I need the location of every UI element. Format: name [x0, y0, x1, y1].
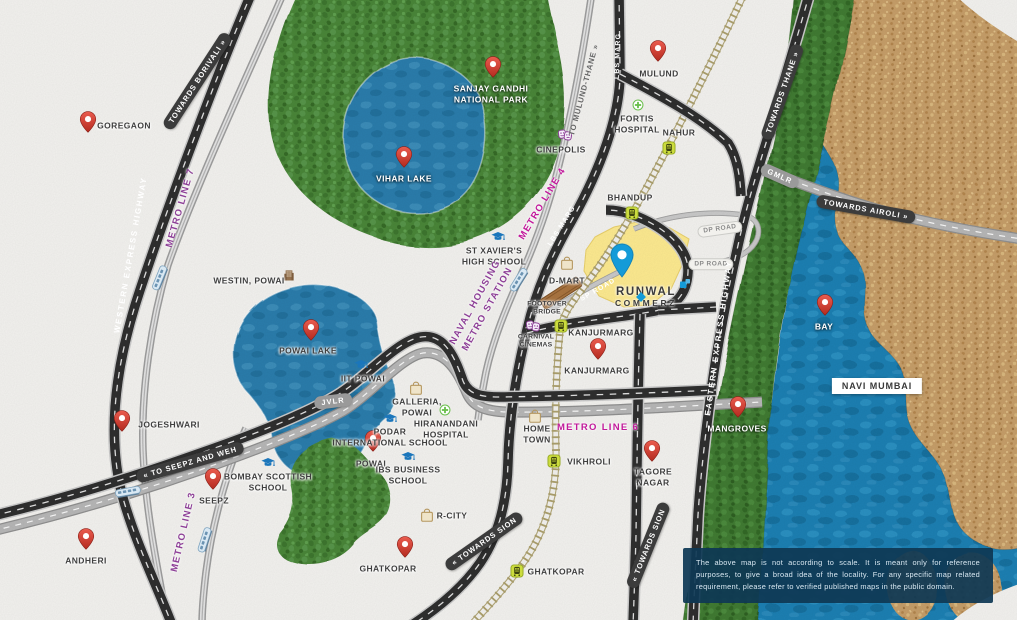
amenity-label-footover-bridge: FOOTOVER BRIDGE — [527, 301, 567, 318]
building-icon[interactable] — [282, 270, 296, 281]
road-label: TOWARDS THANE » — [760, 43, 804, 142]
bag-icon[interactable] — [409, 381, 423, 395]
pin-label-jogeshwari: JOGESHWARI — [138, 420, 200, 431]
pin-goregaon[interactable] — [80, 111, 97, 133]
road-label: WESTERN EXPRESS HIGHWAY — [113, 176, 148, 334]
road-label: GMLR — [759, 162, 801, 190]
pin-label-mangroves: MANGROVES — [707, 424, 766, 435]
cap-icon[interactable] — [401, 452, 415, 463]
masks-icon[interactable] — [526, 321, 540, 332]
pin-label-mulund: MULUND — [639, 69, 678, 80]
pin-mangroves[interactable] — [730, 396, 747, 418]
pin-sanjay-gandhi-national-park[interactable] — [485, 56, 502, 78]
pin-tagore-nagar[interactable] — [644, 440, 661, 462]
amenity-label-cinepolis: CINEPOLIS — [536, 145, 585, 156]
station-label-nahur: NAHUR — [663, 128, 696, 139]
cap-icon[interactable] — [491, 232, 505, 243]
road-label: « TOWARDS SION — [443, 510, 525, 573]
station-label-bhandup: BHANDUP — [607, 193, 652, 204]
amenity-label-d-mart: D-MART — [549, 276, 585, 287]
pin-powai-lake[interactable] — [303, 319, 320, 341]
station-label-ghatkopar-station: GHATKOPAR — [527, 567, 584, 578]
project-label: RUNWALCOMMERZ — [615, 286, 677, 308]
amenity-label-iit-powai: IIT POWAI — [341, 374, 385, 385]
station-label-kanjurmarg-station: KANJURMARG — [568, 328, 633, 339]
road-label: « TO SEEPZ AND WEH — [135, 441, 245, 484]
road-label: LBS MARG — [547, 205, 577, 248]
pin-label-seepz: SEEPZ — [199, 496, 229, 507]
amenity-label-fortis-hospital: FORTIS HOSPITAL — [614, 113, 660, 134]
amenity-label-ibs-business-school: IBS BUSINESS SCHOOL — [376, 464, 441, 485]
pin-label-sanjay-gandhi-national-park: SANJAY GANDHI NATIONAL PARK — [454, 83, 529, 104]
pin-jogeshwari[interactable] — [114, 410, 131, 432]
cross-icon[interactable] — [439, 405, 451, 416]
pin-label-powai-lake: POWAI LAKE — [279, 346, 337, 357]
bag-icon[interactable] — [420, 508, 434, 522]
bag-icon[interactable] — [560, 256, 574, 270]
cross-icon[interactable] — [632, 100, 644, 111]
area-label-navi-mumbai: NAVI MUMBAI — [832, 378, 922, 394]
cap-icon[interactable] — [261, 458, 275, 469]
metro-train-icon — [196, 526, 214, 554]
pin-bay[interactable] — [817, 294, 834, 316]
amenity-label-bombay-scottish-school: BOMBAY SCOTTISH SCHOOL — [224, 471, 312, 492]
metro-station-icon[interactable] — [555, 320, 568, 333]
pin-kanjurmarg[interactable] — [590, 338, 607, 360]
pin-label-andheri: ANDHERI — [65, 556, 107, 567]
amenity-label-westin-powai: WESTIN, POWAI — [213, 276, 284, 287]
pin-label-kanjurmarg: KANJURMARG — [564, 366, 629, 377]
bag-icon[interactable] — [528, 409, 542, 423]
road-label: EASTERN EXPRESS HIGHWAY — [704, 260, 734, 417]
cap-icon[interactable] — [383, 414, 397, 425]
amenity-label-hiranandani-hospital: HIRANANDANI HOSPITAL — [414, 418, 478, 439]
labels-overlay: GOREGAONMULUNDSANJAY GANDHI NATIONAL PAR… — [0, 0, 1017, 620]
map-disclaimer: The above map is not according to scale.… — [683, 548, 993, 603]
metro-station-icon[interactable] — [626, 207, 639, 220]
project-name-line2: COMMERZ — [615, 298, 677, 308]
pin-label-goregaon: GOREGAON — [97, 121, 151, 132]
cap-icon[interactable] — [354, 360, 368, 371]
metro-station-icon[interactable] — [548, 455, 561, 468]
amenity-label-r-city: R-CITY — [437, 511, 468, 522]
metro-station-icon[interactable] — [511, 565, 524, 578]
pin-seepz[interactable] — [205, 468, 222, 490]
amenity-label-podar-international-school: PODAR INTERNATIONAL SCHOOL — [332, 426, 447, 447]
road-label: TOWARDS AIROLI » — [816, 194, 917, 224]
pin-powai[interactable] — [365, 430, 382, 452]
pin-label-ghatkopar-west: GHATKOPAR — [359, 564, 416, 575]
project-pin[interactable] — [607, 242, 637, 280]
amenity-label-home-town: HOME TOWN — [523, 423, 550, 444]
metro-train-icon — [150, 264, 169, 292]
pin-label-tagore-nagar: TAGORE NAGAR — [634, 466, 672, 487]
road-label: DP ROAD — [697, 220, 744, 238]
metro-station-icon[interactable] — [663, 142, 676, 155]
station-label-vikhroli: VIKHROLI — [567, 457, 611, 468]
road-label: « TOWARDS SION — [625, 500, 671, 590]
metro-line-label: NAVAL HOUSING METRO STATION — [447, 258, 518, 355]
metro-train-icon — [114, 485, 141, 499]
pin-label-bay: BAY — [815, 322, 833, 333]
amenity-label-galleria-powai: GALLERIA, POWAI — [392, 396, 441, 417]
pin-vihar-lake[interactable] — [396, 146, 413, 168]
amenity-label-carnival-cinemas: CARNIVAL CINEMAS — [518, 334, 554, 351]
metro-line-label: METRO LINE 6 — [557, 421, 639, 435]
road-label: TO MULUND-THANE » — [568, 43, 600, 136]
pin-label-vihar-lake: VIHAR LAKE — [376, 174, 432, 185]
road-label: SP ROAD — [579, 277, 617, 303]
pin-label-powai: POWAI — [356, 459, 386, 470]
pin-mulund[interactable] — [650, 40, 667, 62]
pin-andheri[interactable] — [78, 528, 95, 550]
road-label: TOWARDS BORIVALI » — [161, 31, 232, 132]
locality-map: GOREGAONMULUNDSANJAY GANDHI NATIONAL PAR… — [0, 0, 1017, 620]
road-label: JVLR — [314, 393, 353, 410]
metro-line-label: METRO LINE 7 — [163, 167, 199, 250]
road-label: LBS MARG — [614, 33, 623, 79]
runwal-logo-icon — [680, 279, 691, 290]
metro-line-label: METRO LINE 3 — [168, 490, 200, 573]
pin-ghatkopar-west[interactable] — [397, 536, 414, 558]
